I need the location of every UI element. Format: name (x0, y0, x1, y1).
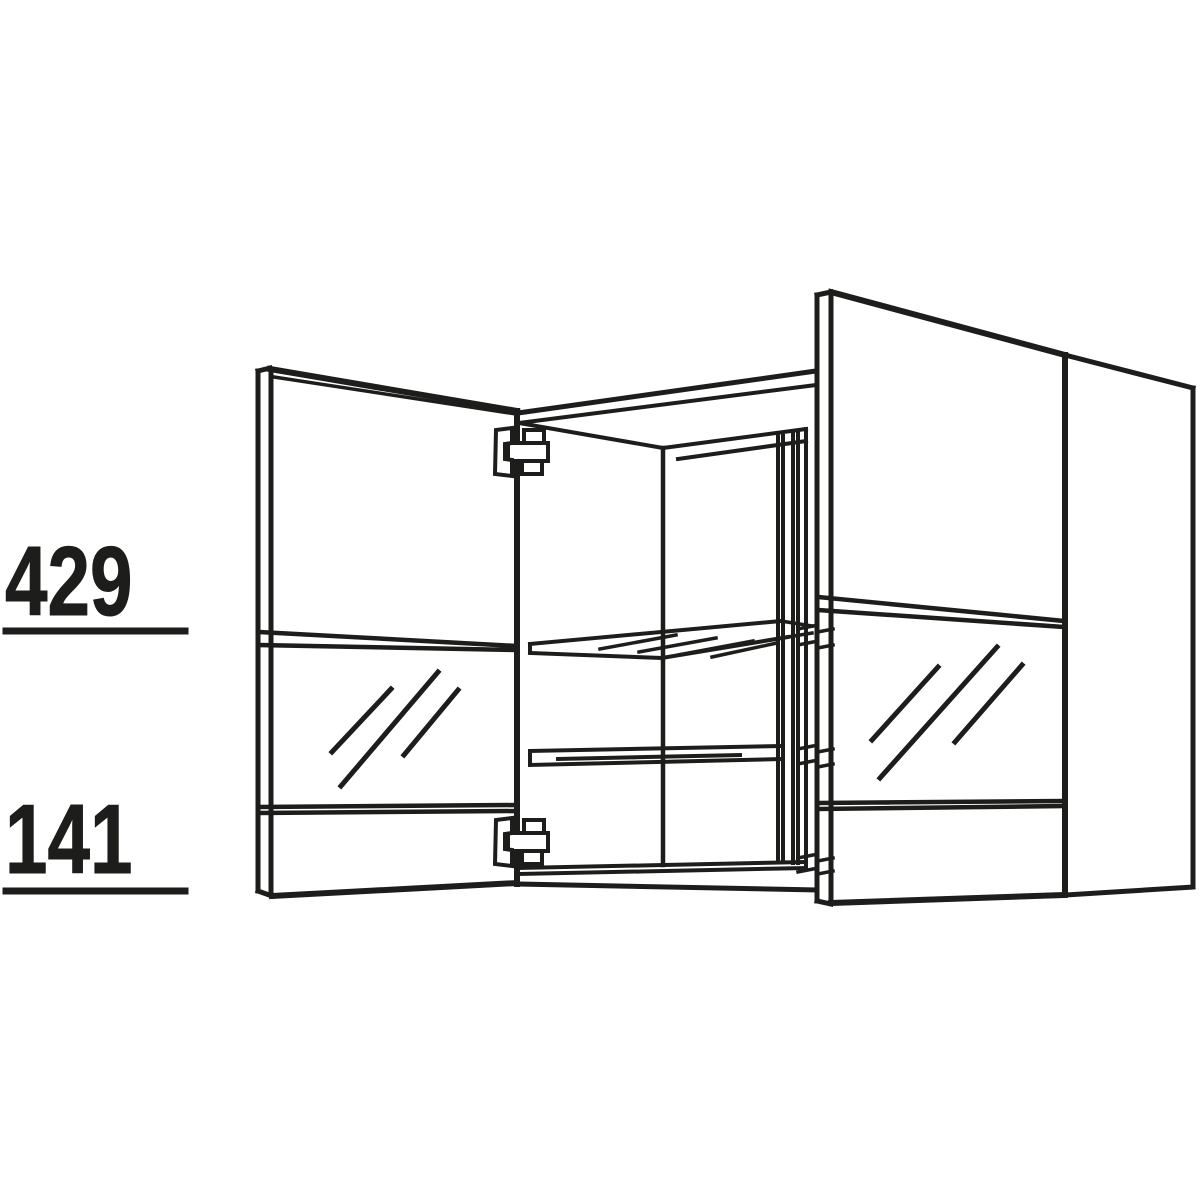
carcass-right-inner-verticals (778, 429, 806, 865)
lower-glass-shelf (530, 746, 783, 765)
left-door (258, 368, 517, 896)
right-side-panel-outline (1065, 355, 1193, 895)
right-door (817, 292, 1065, 904)
carcass-top-inner-edges (519, 385, 816, 459)
dimension-upper-label: 429 (5, 526, 133, 636)
right-door-glass-reflection-marks (872, 647, 1022, 778)
carcass-bottom-inner-edges (519, 862, 806, 874)
right-door-panel-separations (818, 597, 1064, 809)
carcass-bottom-front-edge (519, 884, 816, 890)
dimension-annotations: 429 141 (5, 526, 185, 894)
right-door-outline (831, 292, 1065, 903)
top-hinge (495, 428, 548, 476)
left-door-panel-separations (259, 632, 517, 813)
cabinet-line-drawing: 429 141 (0, 0, 1200, 1200)
left-door-glass-reflection-marks (332, 672, 458, 786)
upper-glass-shelf (530, 621, 812, 658)
bottom-hinge (495, 818, 548, 866)
dimension-lower-label: 141 (5, 784, 133, 894)
technical-drawing-page: 429 141 (0, 0, 1200, 1200)
upper-shelf-hatch-lines (600, 635, 777, 657)
left-door-top-edge-inner-line (274, 377, 516, 414)
lower-shelf-outline (530, 746, 783, 765)
right-side-panel (1065, 355, 1193, 895)
